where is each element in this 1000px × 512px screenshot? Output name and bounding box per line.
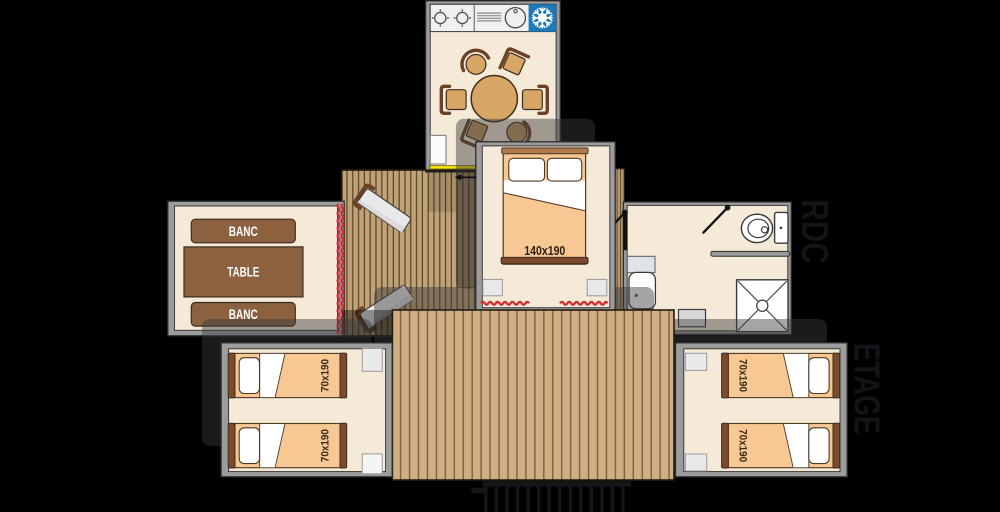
svg-text:70x190: 70x190 — [736, 359, 748, 392]
svg-text:BANC: BANC — [229, 224, 258, 239]
svg-text:70x190: 70x190 — [736, 429, 748, 462]
svg-text:ETAGE: ETAGE — [846, 343, 887, 434]
svg-text:RDC: RDC — [793, 199, 835, 264]
svg-text:TABLE: TABLE — [227, 265, 259, 280]
svg-text:70x190: 70x190 — [320, 359, 332, 392]
svg-text:70x190: 70x190 — [320, 429, 332, 462]
svg-text:140x190: 140x190 — [524, 244, 565, 258]
